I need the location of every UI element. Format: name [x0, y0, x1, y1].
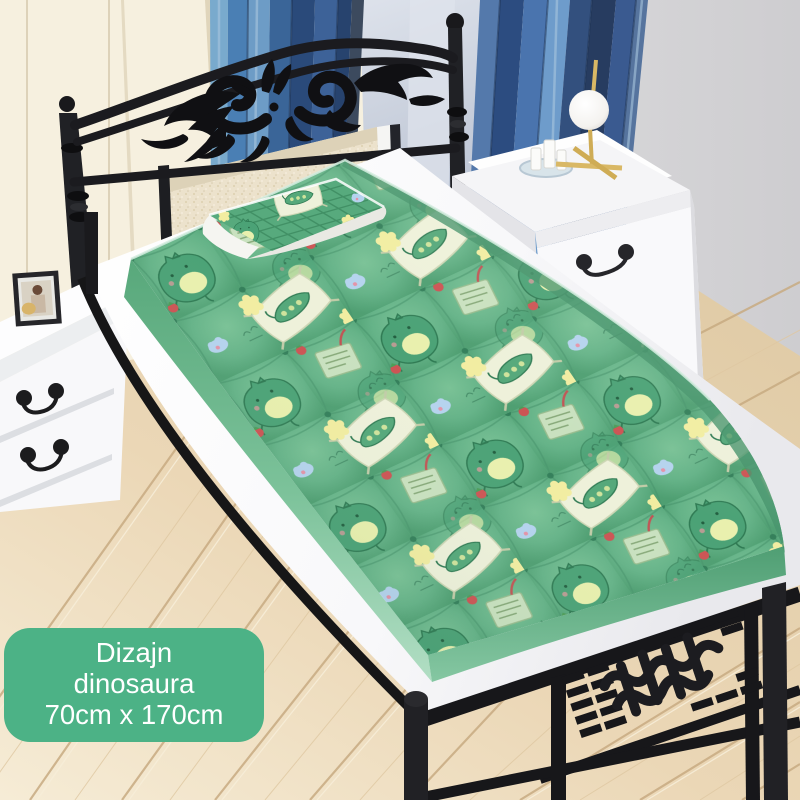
svg-text:70cm x 170cm: 70cm x 170cm	[45, 699, 224, 730]
svg-text:dinosaura: dinosaura	[74, 668, 195, 699]
svg-text:Dizajn: Dizajn	[96, 637, 172, 668]
